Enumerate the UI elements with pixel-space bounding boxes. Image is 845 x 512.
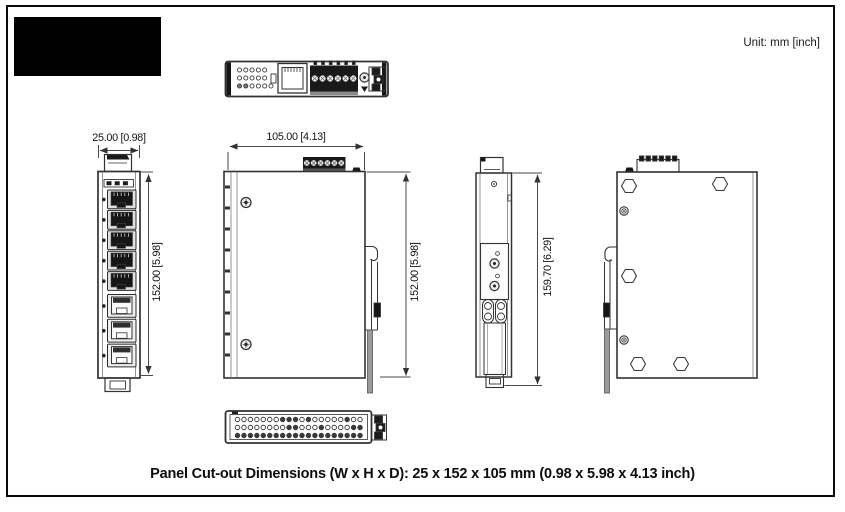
vent-hole [235,425,240,430]
vent-hole [287,417,292,422]
led-hole [250,84,254,88]
vent-hole [358,425,363,430]
port-led [102,329,105,332]
vent-hole [248,433,253,438]
vent-hole [319,433,324,438]
terminal-label-mark [322,61,325,65]
vent-hole [280,425,285,430]
vent-strip [104,180,134,188]
vent-hole [306,433,311,438]
vent-hole [293,425,298,430]
rj45-tab-slot [117,358,128,364]
rj45-contacts [114,298,131,302]
vent-hole [338,425,343,430]
terminal-label-mark [345,61,348,65]
vent-hole [300,433,305,438]
vent-hole-grid [235,417,362,438]
led-hole [244,84,248,88]
vent-hole [332,417,337,422]
bezel-tick [226,186,230,188]
vent-hole [268,433,273,438]
bezel-tick [226,354,230,356]
vent-hole [274,433,279,438]
bottom-din-clip [105,378,130,392]
hex-hole [622,180,637,193]
led-hole [263,84,267,88]
vent-hole [313,425,318,430]
rear-screw [620,336,628,344]
rear-view [604,156,758,393]
vent-hole [358,433,363,438]
rj45-tab-slot [117,285,126,290]
vent-hole [300,425,305,430]
vent-hole [280,433,285,438]
port-led [102,259,105,262]
rj45-port-top [278,64,307,94]
led-hole [263,68,267,72]
dimension-drawing-page: Unit: mm [inch] 25.00 [0.98] 152.00 [5.9… [0,0,845,512]
terminal-block-side [303,157,361,172]
grounding-screw-icon [360,73,369,92]
vent-hole [319,417,324,422]
panel-screw [241,340,251,350]
terminal-label-mark [329,61,332,65]
vent-hole [293,417,298,422]
vent-hole [255,417,260,422]
top-din-clip [105,155,132,172]
led-hole-grid [237,68,273,88]
vent-hole [274,425,279,430]
vent-hole [255,425,260,430]
hex-hole [622,270,637,283]
vent-hole [345,433,350,438]
port-led [102,198,105,201]
vent-hole [332,433,337,438]
led-hole [244,68,248,72]
hex-mount-holes [622,178,728,371]
vent-hole [345,417,350,422]
terminal-tooth [646,156,650,161]
vent-hole [313,433,318,438]
rj45-tab-slot [117,244,126,249]
terminal-label-mark [314,61,317,65]
vent-hole [338,433,343,438]
terminal-tooth [666,156,670,161]
vent-hole [255,433,260,438]
terminal-label-mark [353,61,356,65]
vent-hole [280,417,285,422]
led-hole [237,84,241,88]
bezel-tick [226,312,230,314]
rj45-tab-slot [117,333,128,339]
led-hole [263,76,267,80]
vent-hole [287,425,292,430]
top-view [226,61,389,97]
bezel-tick [226,249,230,251]
vent-hole [248,417,253,422]
corner-mark [232,412,238,415]
vent-hole [326,425,331,430]
vent-hole [261,425,266,430]
side-view [224,157,381,393]
front-bezel-ticks [226,186,230,356]
vent-hole [300,417,305,422]
rear-side-view [476,158,512,388]
terminal-tooth [640,156,644,161]
top-tab [481,158,504,174]
vent-hole [242,425,247,430]
led-hole [256,76,260,80]
terminal-tooth [653,156,657,161]
vent-hole [235,417,240,422]
led-hole [256,68,260,72]
rj45-port-column [102,190,136,367]
bezel-tick [226,333,230,335]
rj45-tab-slot [117,264,126,269]
port-led [102,354,105,357]
vent-hole [351,433,356,438]
bezel-tick [226,291,230,293]
vent-hole [351,425,356,430]
vent-hole [345,425,350,430]
vent-hole [268,425,273,430]
panel-screw [241,198,251,208]
left-end-cap [227,63,232,96]
vent-hole [338,417,343,422]
hex-hole [631,358,646,371]
led-hole [256,84,260,88]
led-hole [250,68,254,72]
bezel-tick [226,228,230,230]
fiber-connector-bottom [372,415,387,440]
hex-hole [713,178,728,191]
din-rail-clip-side [365,247,381,394]
vent-hole [235,433,240,438]
led-hole [244,76,248,80]
slide-latch [484,323,506,388]
bezel-tick [226,270,230,272]
reset-button [271,74,276,83]
terminal-label-mark [337,61,340,65]
terminal-tooth [673,156,677,161]
rj45-tab-slot [117,203,126,208]
port-led [102,219,105,222]
vent-hole [326,433,331,438]
rear-screw [620,207,628,215]
vent-hole [248,425,253,430]
technical-drawing [0,0,845,512]
bezel-tick [226,207,230,209]
vent-hole [274,417,279,422]
vent-hole [268,417,273,422]
vent-hole [319,425,324,430]
vent-hole [261,433,266,438]
vent-hole [358,417,363,422]
vent-hole [261,417,266,422]
vent-hole [306,425,311,430]
spring-holes [483,300,507,324]
vent-hole [306,417,311,422]
port-led [102,305,105,308]
port-led [102,280,105,283]
rj45-contacts [114,323,131,327]
hex-hole [674,358,689,371]
vent-hole [293,433,298,438]
din-rail-clip-rear [604,247,618,393]
front-view [98,155,140,392]
terminal-tooth [659,156,663,161]
terminal-block-top [310,61,358,95]
vent-hole [287,433,292,438]
rj45-tab-slot [117,308,128,314]
vent-hole [242,433,247,438]
rj45-contacts [114,348,131,352]
vent-hole [326,417,331,422]
clip-mount-panel [481,244,509,300]
port-led [102,239,105,242]
rj45-tab-slot [117,223,126,228]
terminal-block-rear [625,156,679,172]
led-hole [237,76,241,80]
led-hole [269,84,273,88]
vent-hole [332,425,337,430]
led-hole [237,68,241,72]
vent-hole [351,417,356,422]
bottom-view [226,411,387,443]
vent-hole [313,417,318,422]
led-hole [250,76,254,80]
vent-hole [242,417,247,422]
